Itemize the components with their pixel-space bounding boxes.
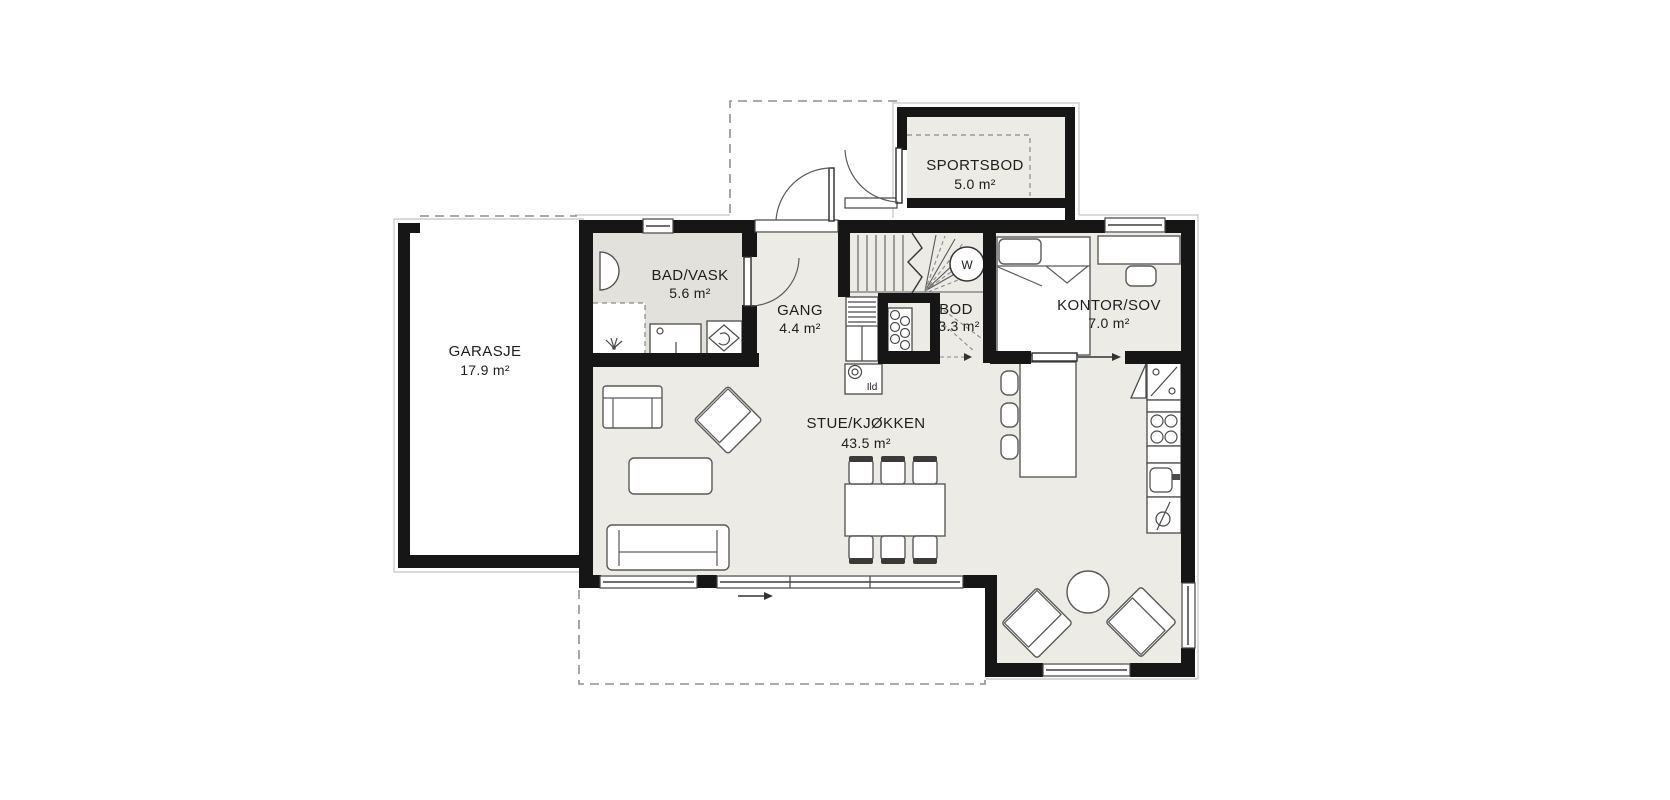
kontor-bottom-wall-a <box>990 351 1031 364</box>
top-wall-a <box>579 220 643 233</box>
room-name: BOD <box>939 301 973 318</box>
nook-right-window <box>1182 583 1195 648</box>
dining-table <box>845 484 945 536</box>
bod-bottom-wall <box>878 351 940 364</box>
kontor-window <box>1105 218 1165 232</box>
stue-window-right <box>717 576 963 588</box>
room-name: SPORTSBOD <box>926 157 1024 174</box>
terrace-dashed <box>579 590 985 684</box>
sportsbod-right-wall <box>1065 107 1075 220</box>
water-heater-label: W <box>961 258 973 272</box>
room-area: 5.6 m² <box>669 285 711 301</box>
desk <box>1098 236 1180 264</box>
kitchen-sink <box>1147 463 1181 497</box>
bar-stool <box>1001 435 1018 459</box>
terrace-sliding-door-arrow <box>738 592 773 600</box>
bathroom-right-wall-lower <box>742 305 757 355</box>
bed <box>997 237 1090 355</box>
nook-bottom-wall-a <box>990 663 1043 677</box>
stue-window-left <box>600 576 697 588</box>
dryer <box>707 321 742 355</box>
bathroom-right-wall-upper <box>742 232 757 257</box>
dishwasher <box>1147 497 1181 533</box>
house-left-wall <box>579 220 593 588</box>
cooktop <box>1147 412 1181 446</box>
bottom-wall-corner-right <box>963 575 997 588</box>
room-name: KONTOR/SOV <box>1057 297 1161 314</box>
room-name: GARASJE <box>449 343 522 360</box>
garage-bottom-wall <box>398 555 584 568</box>
nook-bottom-wall-b <box>1130 663 1195 677</box>
washing-machine <box>650 324 701 354</box>
kontor-bottom-wall-b <box>1125 351 1183 364</box>
bar-stool <box>1001 371 1018 395</box>
garage-left-wall <box>398 223 410 568</box>
garage-top-stub <box>398 223 420 233</box>
kitchen-counter <box>1147 446 1181 463</box>
round-table <box>1067 571 1109 613</box>
room-name: GANG <box>777 302 823 319</box>
top-wall-c <box>838 220 1105 233</box>
right-wall-upper <box>1181 220 1195 583</box>
dining-set <box>845 456 945 564</box>
room-area: 7.0 m² <box>1088 315 1130 331</box>
armchair <box>603 386 662 428</box>
room-name: STUE/KJØKKEN <box>807 415 926 432</box>
room-area: 4.4 m² <box>779 320 821 336</box>
bar-stool <box>1001 403 1018 427</box>
label-garasje: GARASJE 17.9 m² <box>449 343 522 378</box>
bathroom-bottom-wall <box>579 353 759 367</box>
bathroom-window <box>643 219 673 233</box>
kontor-left-wall <box>983 232 996 363</box>
room-area: 17.9 m² <box>460 362 510 378</box>
sofa <box>607 525 729 570</box>
entry-door <box>755 168 838 232</box>
room-name: BAD/VASK <box>651 267 728 284</box>
fireplace: Ild <box>845 364 882 394</box>
wardrobe-top-wall <box>878 293 940 303</box>
kitchen-counter <box>1147 400 1181 412</box>
bottom-wall-pier <box>697 575 717 588</box>
sportsbod-bottom-wall <box>907 198 1065 208</box>
shower-zone <box>593 303 645 353</box>
wardrobe <box>846 297 878 361</box>
nook-left-wall <box>985 575 997 677</box>
sportsbod-top-wall <box>897 107 1075 117</box>
room-area: 43.5 m² <box>841 435 891 451</box>
room-area: 5.0 m² <box>954 176 996 192</box>
pillow <box>999 239 1041 264</box>
stair-left-wall <box>838 233 850 297</box>
room-area: 3.3 m² <box>938 318 980 334</box>
nook-bottom-window <box>1043 664 1130 676</box>
firewood-storage <box>888 308 912 356</box>
floor-plan-drawing: W Ild <box>0 0 1670 800</box>
fireplace-label: Ild <box>867 382 878 393</box>
coffee-table <box>629 458 712 494</box>
top-wall-b <box>673 220 755 233</box>
desk-chair <box>1126 266 1156 286</box>
bottom-wall-corner-left <box>579 575 601 588</box>
